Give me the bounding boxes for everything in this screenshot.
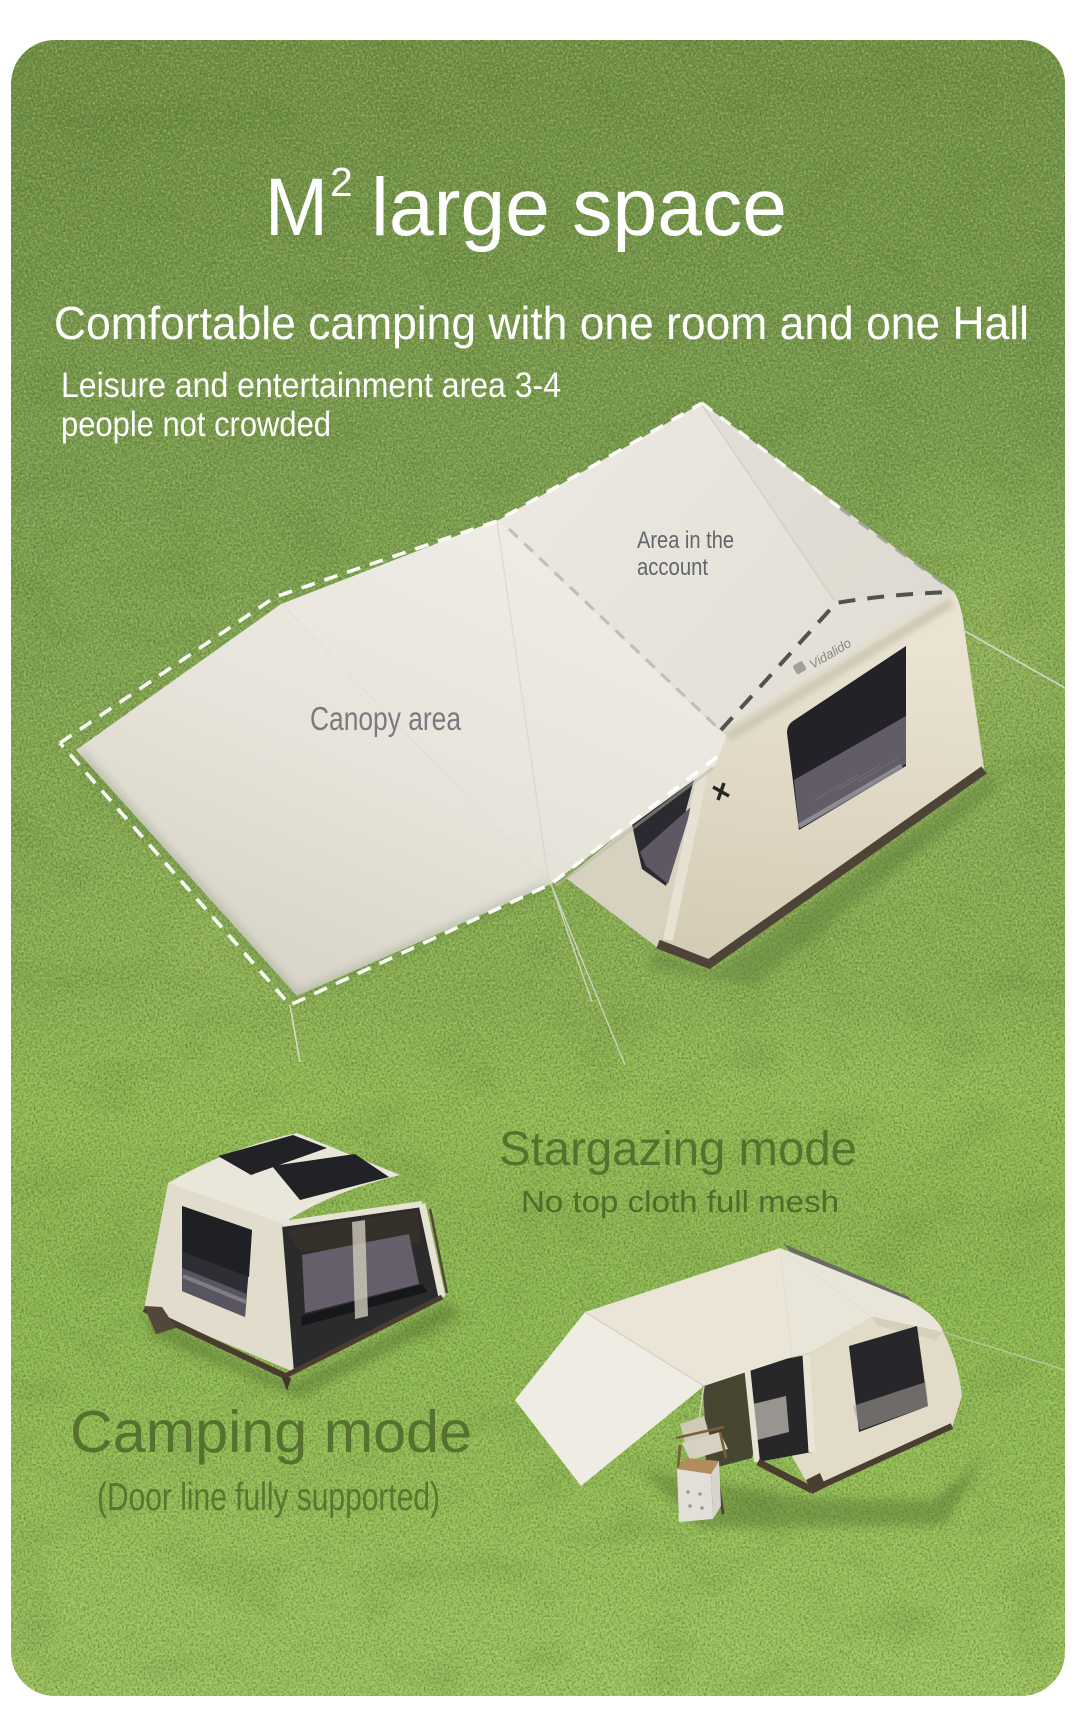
svg-text:account: account [637,554,708,581]
svg-text:M: M [265,162,328,253]
svg-text:Area in the: Area in the [637,527,734,554]
svg-text:Canopy area: Canopy area [310,700,462,737]
svg-text:Stargazing mode: Stargazing mode [499,1123,857,1176]
svg-text:(Door line fully supported): (Door line fully supported) [97,1476,440,1519]
svg-text:Leisure and entertainment area: Leisure and entertainment area 3-4 [61,366,561,405]
svg-text:people not crowded: people not crowded [61,405,331,444]
svg-text:Comfortable camping with one r: Comfortable camping with one room and on… [54,297,1029,349]
svg-text:2: 2 [330,159,353,205]
svg-text:large space: large space [371,162,787,253]
svg-text:No top cloth full mesh: No top cloth full mesh [521,1184,839,1219]
svg-text:Camping mode: Camping mode [70,1399,472,1465]
